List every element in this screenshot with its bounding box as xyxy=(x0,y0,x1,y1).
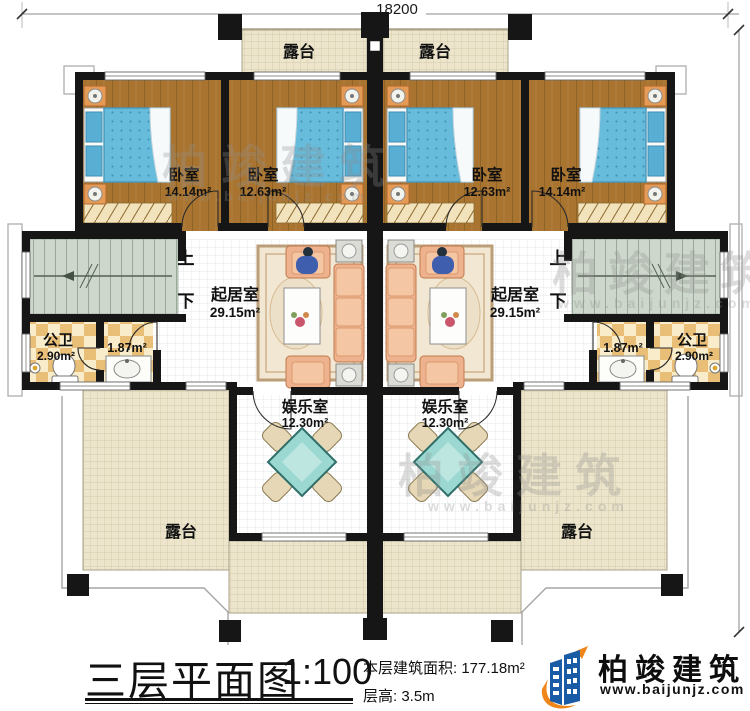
watermark-brand: 柏竣建筑 xyxy=(552,248,750,300)
company-website: www.baijunjz.com xyxy=(600,681,745,697)
terrace-bottom-left xyxy=(83,390,229,570)
title-underline xyxy=(85,698,353,701)
title-underline-thin xyxy=(85,703,353,704)
label-living-left-name: 起居室 xyxy=(210,285,259,304)
label-terrace-top-left: 露台 xyxy=(283,42,315,61)
label-bath-left-area: 2.90m² xyxy=(37,349,75,363)
label-bath-left-inner-area: 1.87m² xyxy=(107,341,147,355)
plan-scale: 1:100 xyxy=(282,651,372,693)
floor-plan-page: 18200 15840 xyxy=(0,0,750,711)
company-logo: 柏竣建筑 www.baijunjz.com xyxy=(540,641,750,711)
label-bath-right-inner-area: 1.87m² xyxy=(603,341,643,355)
living-furniture-right xyxy=(386,240,492,388)
label-ent-right-name: 娱乐室 xyxy=(422,397,469,416)
living-furniture-left xyxy=(258,240,364,388)
label-bedroom-4-name: 卧室 xyxy=(550,165,581,184)
watermark-site: www.baijunjz.com xyxy=(167,188,369,204)
label-living-right-name: 起居室 xyxy=(490,285,539,304)
label-ent-left-area: 12.30m² xyxy=(282,416,329,430)
label-bath-right-name: 公卫 xyxy=(677,332,707,349)
label-stair-left-up: 上 xyxy=(178,249,195,268)
label-bedroom-4-area: 14.14m² xyxy=(539,185,586,199)
label-living-left-area: 29.15m² xyxy=(210,305,261,320)
label-terrace-top-right: 露台 xyxy=(419,42,451,61)
entertainment-furniture-left xyxy=(260,420,344,504)
label-living-right-area: 29.15m² xyxy=(490,305,541,320)
company-logo-icon xyxy=(540,643,594,711)
floor-height-text: 层高: 3.5m xyxy=(363,685,435,706)
label-bedroom-3-name: 卧室 xyxy=(471,165,502,184)
label-bath-right-area: 2.90m² xyxy=(675,349,713,363)
label-stair-left-down: 下 xyxy=(178,292,195,311)
label-bath-left-name: 公卫 xyxy=(43,332,73,349)
label-ent-left-name: 娱乐室 xyxy=(282,397,329,416)
label-bedroom-3-area: 12.63m² xyxy=(464,185,511,199)
label-ent-right-area: 12.30m² xyxy=(422,416,469,430)
label-terrace-bottom-right: 露台 xyxy=(561,522,593,541)
watermark-site: www.baijunjz.com xyxy=(427,498,629,514)
title-block: 三层平面图 1:100 本层建筑面积: 177.18m² 层高: 3.5m 柏竣… xyxy=(0,645,750,711)
floor-plan-drawing: 18200 15840 xyxy=(0,0,750,645)
center-wall-niche xyxy=(369,40,381,52)
label-terrace-bottom-left: 露台 xyxy=(165,522,197,541)
stair-left xyxy=(30,239,178,314)
watermark-site: www.baijunjz.com xyxy=(557,295,750,311)
floor-area-text: 本层建筑面积: 177.18m² xyxy=(363,657,525,678)
watermark-brand: 柏竣建筑 xyxy=(162,141,398,193)
watermark-brand: 柏竣建筑 xyxy=(398,450,634,502)
